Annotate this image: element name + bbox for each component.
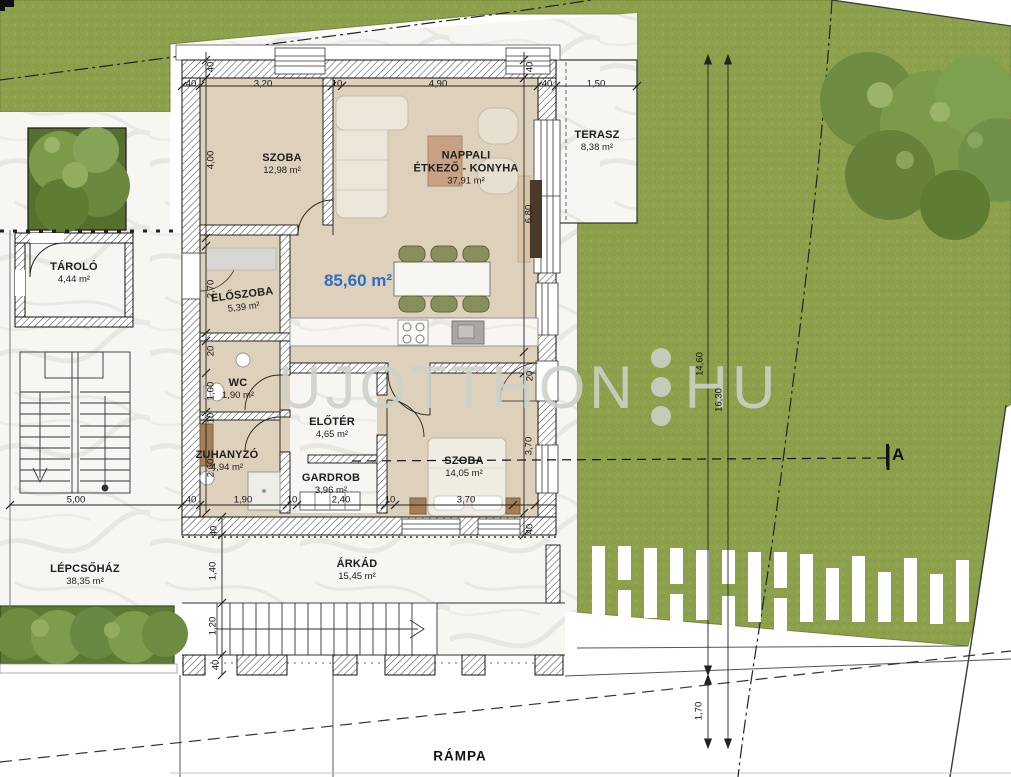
dim-label: 20 [525,371,536,382]
total-area-label: 85,60 m² [324,271,392,291]
room-label-nappali: NAPPALI ÉTKEZŐ - KONYHA 37,91 m² [413,149,518,186]
watermark-left: UJOTTHON [278,353,637,422]
floor-plan-canvas: UJOTTHON HU SZOBA 12,98 m² NAPPALI ÉTKEZ… [0,0,1011,777]
dim-label: 40 [525,62,536,73]
dim-label: 14,60 [695,352,706,376]
dim-label: 40 [542,79,553,90]
room-label-wc: WC 1,90 m² [222,377,254,401]
doormat [206,248,276,270]
watermark-dots-icon [651,348,671,426]
room-label-terasz: TERASZ 8,38 m² [574,129,619,153]
dim-label: 5,00 [67,495,86,506]
dim-label: 10 [385,495,396,506]
island-dining [394,246,490,312]
dim-label: 3,70 [524,437,535,456]
room-label-eloter: ELŐTÉR 4,65 m² [309,416,355,440]
section-tick [886,444,889,466]
room-label-szoba2: SZOBA 14,05 m² [444,455,484,479]
dim-label: 4,90 [429,79,448,90]
room-label-lepcsohaz: LÉPCSŐHÁZ 38,35 m² [50,563,120,587]
dim-label: 1,90 [234,495,253,506]
planter-trees-topleft [28,127,130,233]
kitchen [290,318,538,346]
dim-label: 40 [186,495,197,506]
dim-label: 1,50 [587,79,606,90]
dim-label: 1,40 [208,562,219,581]
dim-label: 40 [186,79,197,90]
dim-label: 1,00 [206,382,217,401]
dim-label: 1,20 [208,617,219,636]
dim-label: 4,00 [206,151,217,170]
window-bottom-2 [478,519,520,535]
window-top-szoba [275,48,325,74]
dim-label: 10 [206,413,217,424]
dim-label: 20 [206,346,217,357]
dim-label: 10 [287,495,298,506]
dim-label: 40 [525,524,536,535]
dim-label: 3,70 [457,495,476,506]
dim-label: 40 [206,62,217,73]
room-label-tarolo: TÁROLÓ 4,44 m² [50,261,98,285]
room-label-szoba1: SZOBA 12,98 m² [262,152,302,176]
window-bottom-1 [402,519,460,535]
rampa-label: RÁMPA [433,749,487,764]
plaster-band [176,45,560,60]
room-label-arkad: ÁRKÁD 15,45 m² [337,558,378,582]
hedge-row [0,606,188,673]
room-label-gardrob: GARDROB 3,96 m² [302,472,360,496]
dim-label: 2,40 [332,495,351,506]
dim-label: 40 [211,660,222,671]
window-right-2 [536,445,558,493]
dim-label: 1,70 [694,702,705,721]
window-right-1 [536,283,558,335]
dim-label: 2,60 [206,459,217,478]
section-marker-a: A [886,444,904,466]
dim-label: 40 [209,526,220,537]
dim-label: 2,70 [206,280,217,299]
pillars [182,655,565,675]
dim-label: 10 [332,79,343,90]
dim-label: 16,30 [714,388,725,412]
dim-label: 6,80 [524,205,535,224]
ramp-lines [170,646,1011,777]
armchair [478,108,518,144]
dim-label: 3,20 [254,79,273,90]
